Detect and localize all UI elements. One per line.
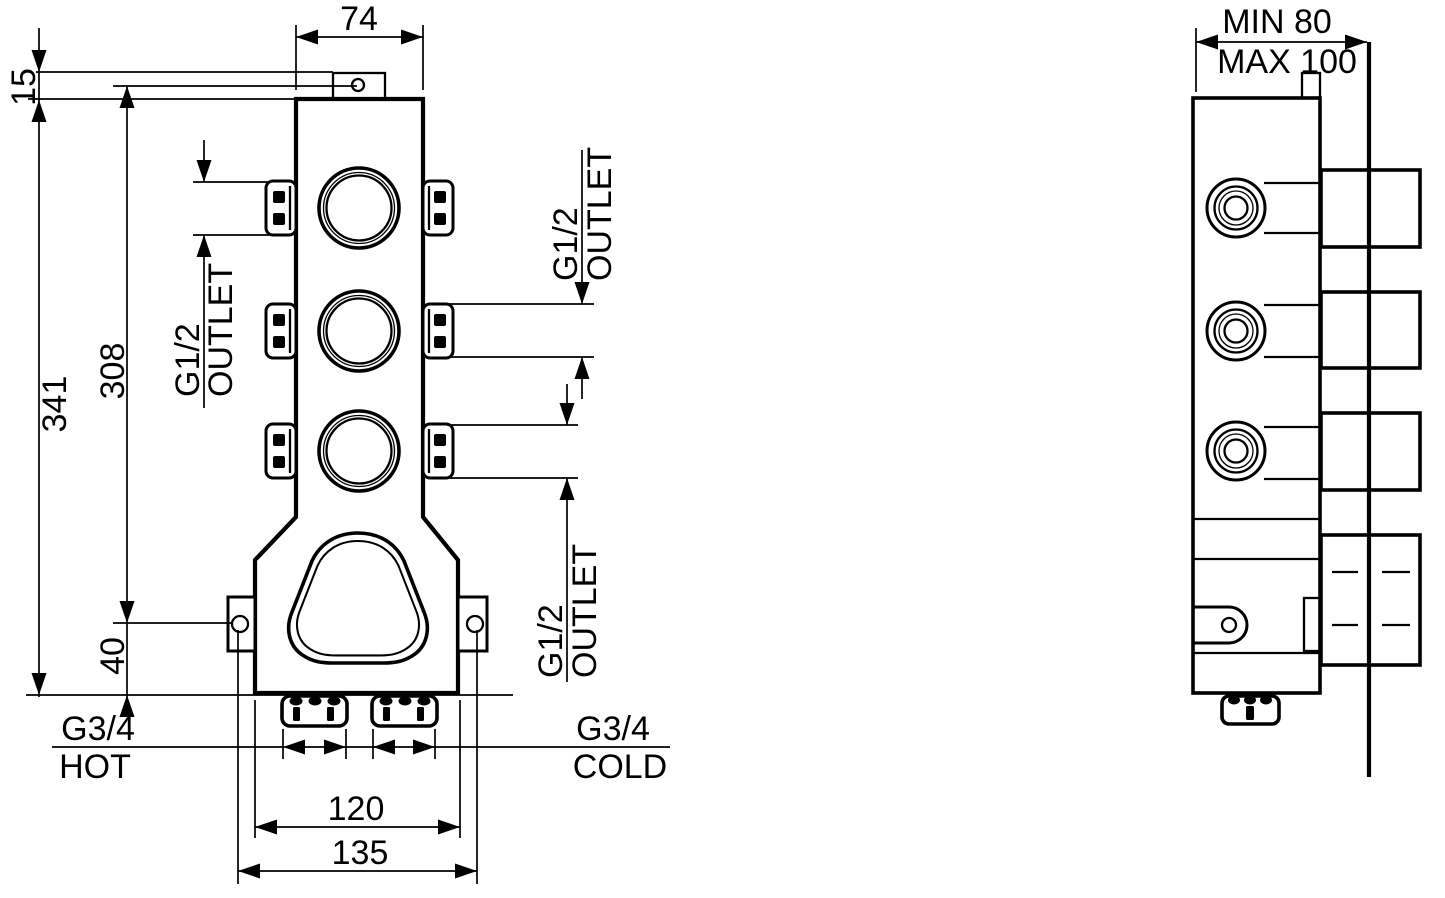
- technical-drawing-page: 74 15 341 308 40: [0, 0, 1445, 898]
- inlet-nut-hot: [282, 696, 347, 726]
- inlet-labels: G3/4 HOT G3/4 COLD: [52, 710, 670, 786]
- front-view: 74 15 341 308 40: [5, 0, 670, 884]
- outlet-nut-left-middle: [266, 304, 296, 358]
- outlet-label-middle: G1/2 OUTLET: [447, 147, 619, 399]
- outlet-nut-right-bottom: [423, 424, 453, 478]
- dim-depth-min: MIN 80: [1222, 3, 1332, 41]
- outlet-nut-right-top: [423, 181, 453, 235]
- outlet-word-top: OUTLET: [202, 263, 240, 397]
- inlet-nut-cold: [372, 696, 437, 726]
- dimension-wall-depth: MIN 80 MAX 100: [1196, 3, 1367, 92]
- dim-74: 74: [340, 0, 378, 38]
- outlet-word-bottom: OUTLET: [566, 544, 604, 678]
- mounting-ear-right: [458, 597, 487, 651]
- inlet-hot-thread: G3/4: [61, 710, 135, 748]
- inlet-cold-word: COLD: [573, 748, 667, 786]
- outlet-thread-middle: G1/2: [547, 207, 585, 281]
- outlet-label-top: G1/2 OUTLET: [169, 140, 270, 408]
- dim-depth-max: MAX 100: [1217, 43, 1357, 81]
- outlet-thread-bottom: G1/2: [532, 604, 570, 678]
- outlet-nut-left-top: [266, 181, 296, 235]
- dim-40: 40: [94, 637, 132, 675]
- dim-308: 308: [94, 343, 132, 400]
- inlet-hot-word: HOT: [59, 748, 131, 786]
- outlet-nut-left-bottom: [266, 424, 296, 478]
- side-view: MIN 80 MAX 100: [1193, 3, 1420, 777]
- valve-installation-drawing: 74 15 341 308 40: [0, 0, 1445, 898]
- dim-120: 120: [328, 790, 385, 828]
- outlet-nut-right-middle: [423, 304, 453, 358]
- outlet-word-middle: OUTLET: [581, 147, 619, 281]
- mounting-ear-left: [228, 597, 255, 651]
- inlet-cold-thread: G3/4: [576, 710, 650, 748]
- dim-341: 341: [36, 376, 74, 433]
- dim-15: 15: [5, 68, 43, 106]
- inlet-nut-side: [1222, 696, 1279, 725]
- dim-135: 135: [332, 834, 389, 872]
